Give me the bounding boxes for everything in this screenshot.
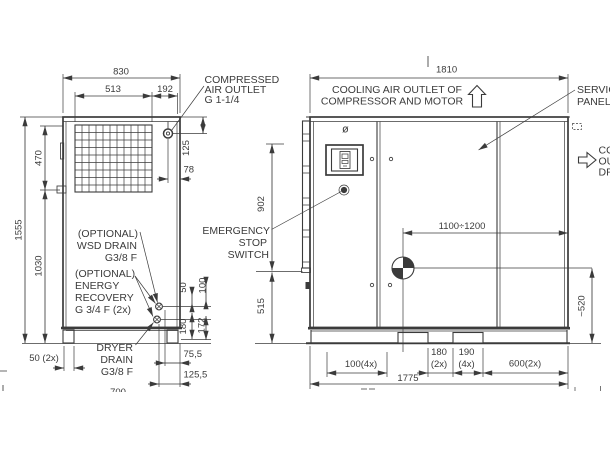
center-of-gravity-symbol xyxy=(392,257,414,279)
energy-recovery-label-3: RECOVERY xyxy=(75,292,134,304)
dim-foot-pitch: 100(4x) xyxy=(345,359,377,370)
dim-body-height: 1030 xyxy=(34,255,45,276)
service-panel-label-1: SERVICE xyxy=(577,84,610,96)
dim-upper-height: 902 xyxy=(256,196,267,212)
vent-symbol: ø xyxy=(342,124,349,136)
right-arrow-icon xyxy=(579,153,597,168)
wsd-drain-leader xyxy=(140,232,158,303)
dim-slot-gap: 180 xyxy=(431,347,447,358)
dim-lower-height: 515 xyxy=(256,298,267,314)
cooling-grille xyxy=(75,125,152,192)
dim-outlet-from-edge: 78 xyxy=(184,165,195,176)
emergency-stop-label-2: STOP xyxy=(239,237,267,249)
dryer-drain-label-1: DRYER xyxy=(96,342,133,354)
dim-grille-width: 513 xyxy=(105,84,121,95)
crop-artifacts xyxy=(0,371,601,391)
technical-drawing: 830 513 192 1555 470 1030 125 78 50 (2x) xyxy=(0,0,610,450)
dim-foot-width: 50 (2x) xyxy=(29,353,59,364)
forklift-slot-right xyxy=(453,333,483,344)
door-latch-front xyxy=(306,282,311,289)
dim-slot-width-qty: (4x) xyxy=(458,359,474,370)
hidden-fitting xyxy=(573,124,582,130)
screw xyxy=(370,283,373,286)
dim-slot-width: 190 xyxy=(459,347,475,358)
forklift-slot-left xyxy=(398,333,428,344)
energy-recovery-label-4: G 3/4 F (2x) xyxy=(75,304,131,316)
front-view-callouts: COOLING AIR OUTLET OF COMPRESSOR AND MOT… xyxy=(202,84,610,261)
screw xyxy=(370,157,373,160)
wsd-drain-label-1: (OPTIONAL) xyxy=(78,228,138,240)
door-latch xyxy=(57,186,66,193)
cooling-right-label-3: DRYER xyxy=(599,167,610,179)
compressed-air-outlet-fitting xyxy=(164,122,173,139)
dim-cog-height: ~520 xyxy=(577,295,588,316)
dim-grille-height: 470 xyxy=(34,150,45,166)
dim-outlet-offset: 192 xyxy=(157,84,173,95)
dim-port-spacing-b: 100 xyxy=(198,278,209,294)
dim-front-overall-width: 1810 xyxy=(436,65,457,76)
dryer-drain-leader xyxy=(136,323,154,346)
controller-inner xyxy=(332,149,358,171)
service-panel-label-2: PANEL xyxy=(577,96,610,108)
cooling-top-label-1: COOLING AIR OUTLET OF xyxy=(332,84,462,96)
dim-cog-range: 1100÷1200 xyxy=(439,221,486,232)
emergency-stop-label-1: EMERGENCY xyxy=(202,225,270,237)
emergency-stop-leader xyxy=(272,192,342,230)
side-foot-left xyxy=(63,330,74,343)
dim-total-height: 1555 xyxy=(14,219,25,240)
energy-recovery-label-2: ENERGY xyxy=(75,280,119,292)
wsd-drain-label-3: G3/8 F xyxy=(105,252,137,264)
dim-port-spacing-a: 50 xyxy=(178,282,189,293)
dim-slot-pitch: 600(2x) xyxy=(509,359,541,370)
dim-base-width: 1775 xyxy=(397,373,418,384)
dim-slot-gap-qty: (2x) xyxy=(431,359,447,370)
side-foot-right xyxy=(167,330,178,343)
dim-port-height-a: 180 xyxy=(178,319,189,335)
dryer-drain-label-2: DRAIN xyxy=(100,354,133,366)
screw xyxy=(388,283,391,286)
service-panel-leader xyxy=(479,90,576,150)
cooling-top-label-2: COMPRESSOR AND MOTOR xyxy=(321,96,464,108)
drain-fittings xyxy=(154,303,163,323)
dim-port-height-b: 172 xyxy=(197,318,208,334)
wsd-drain-label-2: WSD DRAIN xyxy=(77,240,137,252)
bottom-crop-mask xyxy=(0,392,610,450)
dim-outlet-from-top: 125 xyxy=(181,140,192,156)
air-outlet-leader xyxy=(172,86,205,131)
air-outlet-label-3: G 1-1/4 xyxy=(205,94,240,106)
emergency-stop-button xyxy=(341,187,347,193)
grille-grid xyxy=(75,125,152,192)
dim-side-overall-width: 830 xyxy=(113,67,129,78)
dim-drain-offset-b: 125,5 xyxy=(184,370,208,381)
energy-recovery-label-1: (OPTIONAL) xyxy=(75,268,135,280)
emergency-stop-label-3: SWITCH xyxy=(228,249,269,261)
control-panel: ø xyxy=(326,124,582,287)
up-arrow-icon xyxy=(469,86,486,108)
screw xyxy=(389,157,392,160)
compressor-dimension-drawing: 830 513 192 1555 470 1030 125 78 50 (2x) xyxy=(0,0,610,450)
dim-drain-offset-a: 75,5 xyxy=(184,349,203,360)
dryer-drain-label-3: G3/8 F xyxy=(101,366,133,378)
